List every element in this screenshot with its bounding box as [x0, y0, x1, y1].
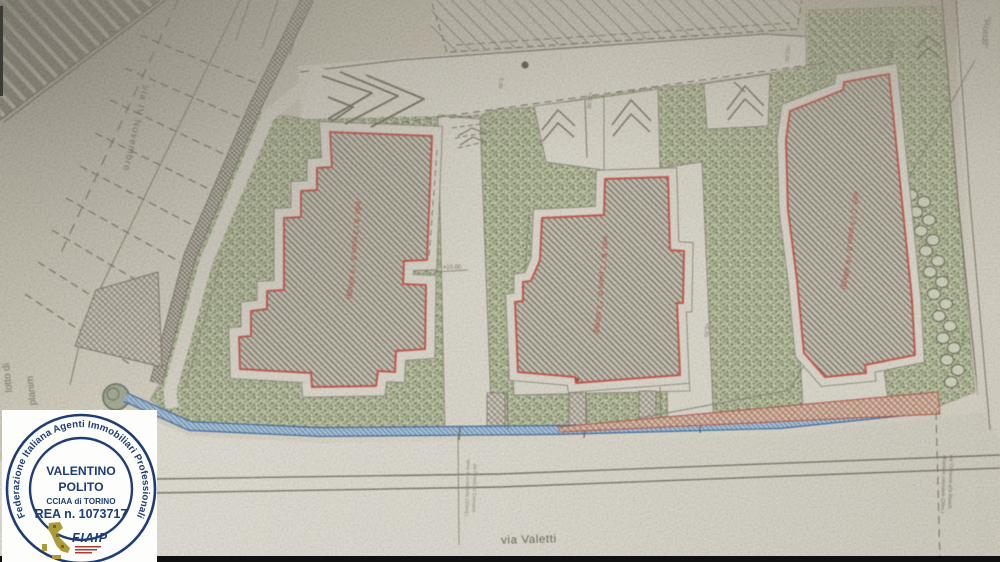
- svg-text:REA n. 1073717: REA n. 1073717: [35, 507, 128, 521]
- svg-text:CCIAA di TORINO: CCIAA di TORINO: [46, 497, 116, 506]
- svg-text:FIAIP: FIAIP: [72, 531, 108, 545]
- svg-text:VALENTINO: VALENTINO: [46, 464, 116, 478]
- svg-text:POLITO: POLITO: [58, 480, 103, 494]
